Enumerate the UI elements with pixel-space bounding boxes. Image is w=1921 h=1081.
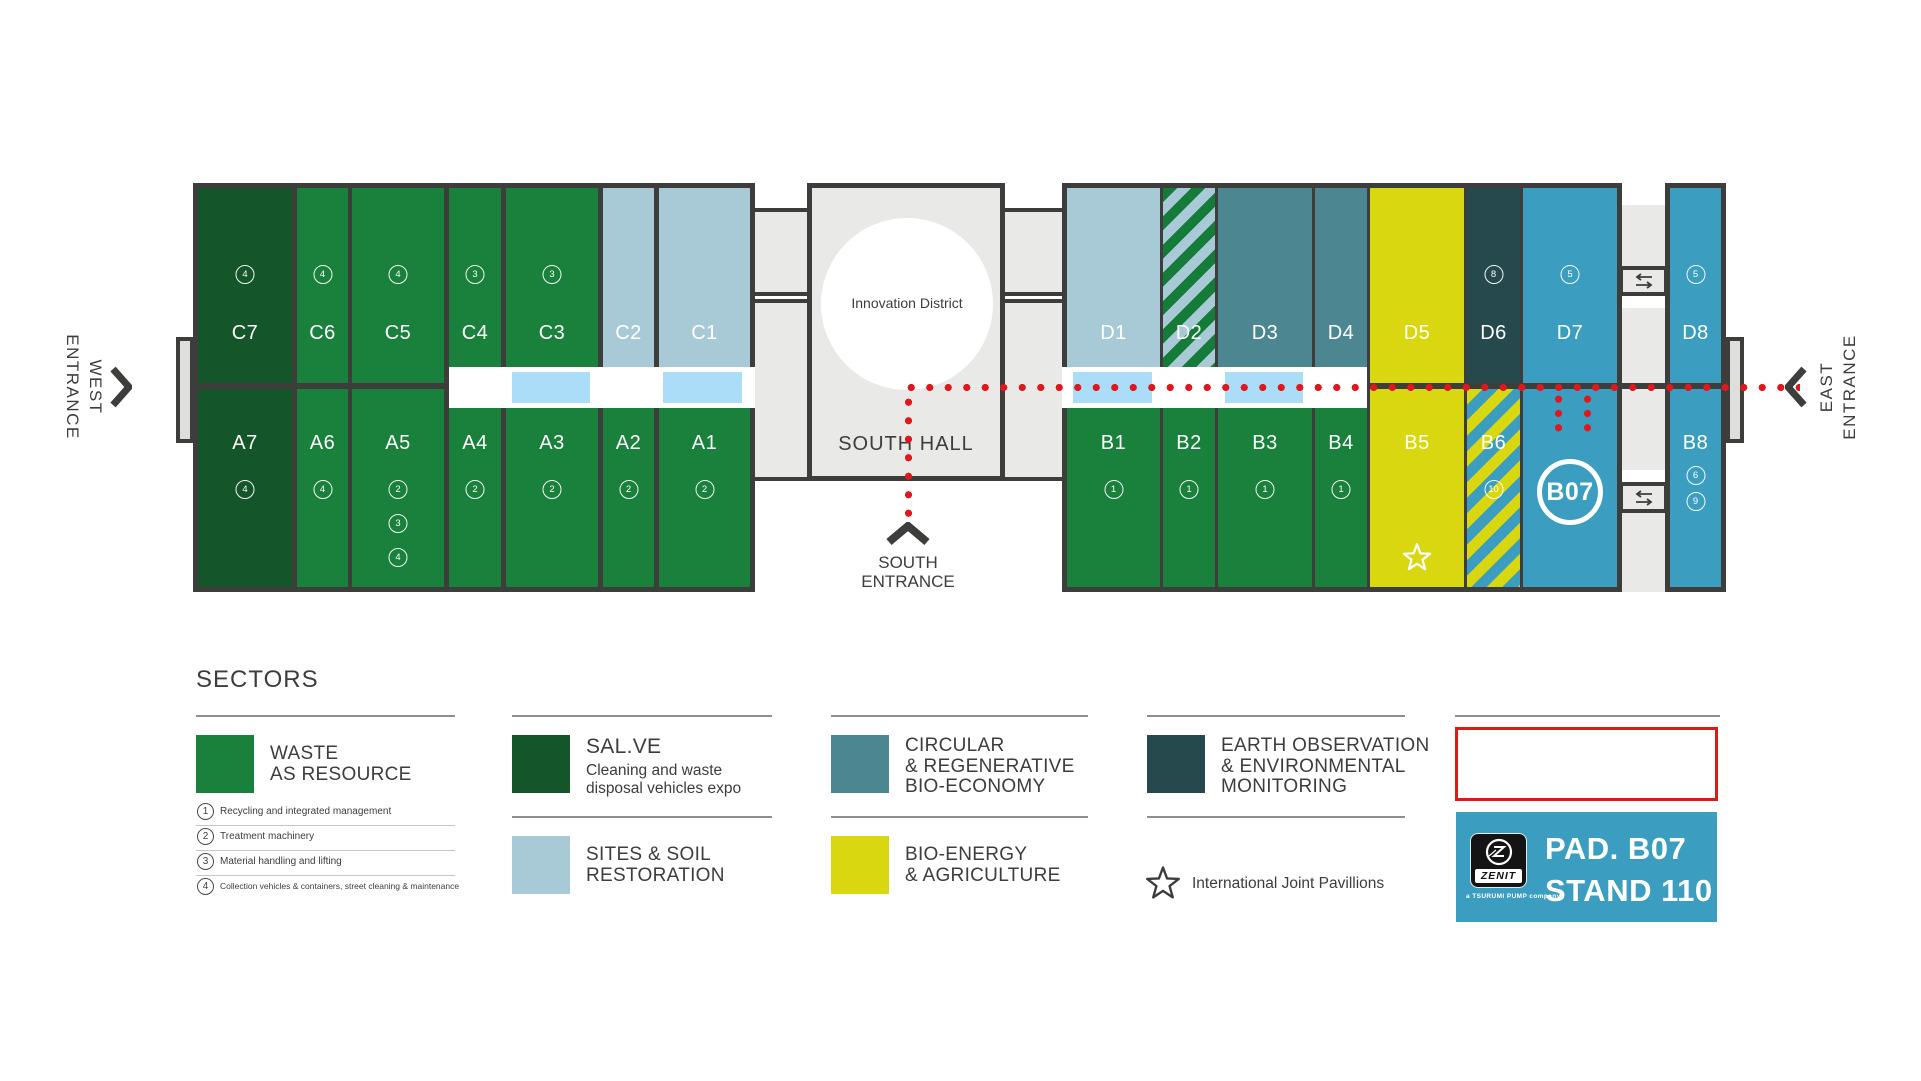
legend-rule	[196, 715, 455, 717]
zenit-wordmark: ZENIT	[1475, 869, 1522, 883]
zenit-emblem-icon	[1484, 837, 1514, 867]
legend-label-line: BIO-ENERGY	[905, 845, 1061, 866]
legend-label-line: & AGRICULTURE	[905, 866, 1061, 887]
legend-rule	[831, 816, 1088, 818]
legend-label-line: CIRCULAR	[905, 736, 1075, 757]
legend-swatch-salve	[512, 735, 570, 793]
legend-rule	[831, 715, 1088, 717]
legend-label-earth: EARTH OBSERVATION& ENVIRONMENTALMONITORI…	[1221, 736, 1430, 798]
legend-swatch-bioenergy	[831, 836, 889, 894]
legend-item-text: Recycling and integrated management	[220, 803, 391, 820]
legend-swatch-earth	[1147, 735, 1205, 793]
legend-label-line: SAL.VE	[586, 737, 661, 758]
legend-label-line: MONITORING	[1221, 777, 1430, 798]
floor-plan-canvas: WEST ENTRANCE Innovation District SOUTH …	[0, 0, 1921, 1081]
joint-pavillions-label: International Joint Pavillions	[1192, 875, 1384, 893]
legend-rule	[1455, 715, 1720, 717]
stand-number: STAND 110	[1545, 870, 1713, 912]
stand-location-text: PAD. B07 STAND 110	[1545, 828, 1713, 912]
legend-label-line: EARTH OBSERVATION	[1221, 736, 1430, 757]
legend-item-number: 4	[197, 878, 214, 895]
legend-item-separator	[196, 850, 455, 851]
legend-label-line: & ENVIRONMENTAL	[1221, 757, 1430, 778]
legend-label-line: BIO-ECONOMY	[905, 777, 1075, 798]
legend-label-sites: SITES & SOILRESTORATION	[586, 845, 725, 886]
legend-item-separator	[196, 825, 455, 826]
legend-desc-line: disposal vehicles expo	[586, 780, 741, 798]
legend-label-line: WASTE	[270, 744, 412, 765]
legend-label-line: AS RESOURCE	[270, 765, 412, 786]
legend-label-salve: SAL.VE	[586, 737, 661, 758]
stand-pavilion: PAD. B07	[1545, 828, 1713, 870]
route-dotted-grid	[1544, 392, 1602, 435]
legend-item-separator	[196, 875, 455, 876]
legend-label-bioenergy: BIO-ENERGY& AGRICULTURE	[905, 845, 1061, 886]
legend-rule	[512, 816, 772, 818]
highlight-box-water-cycle	[1455, 727, 1718, 801]
legend-swatch-waste	[196, 735, 254, 793]
legend-item-number: 2	[197, 828, 214, 845]
legend-desc-line: Cleaning and waste	[586, 762, 741, 780]
legend-swatch-circular	[831, 735, 889, 793]
stand-banner: ZENIT a TSURUMI PUMP company PAD. B07 ST…	[1456, 812, 1717, 922]
legend-item-number: 1	[197, 803, 214, 820]
route-dotted-line-horizontal	[902, 383, 1800, 392]
legend-rule	[1147, 715, 1405, 717]
legend-item-text: Treatment machinery	[220, 828, 314, 845]
legend-swatch-sites	[512, 836, 570, 894]
legend-label-circular: CIRCULAR& REGENERATIVEBIO-ECONOMY	[905, 736, 1075, 798]
legend-item-text: Collection vehicles & containers, street…	[220, 878, 459, 895]
legend-item-text: Material handling and lifting	[220, 853, 342, 870]
legend-label-waste: WASTEAS RESOURCE	[270, 744, 412, 785]
zenit-logo: ZENIT	[1470, 833, 1527, 888]
joint-pavillion-star-icon	[1145, 866, 1181, 902]
legend-desc-salve: Cleaning and wastedisposal vehicles expo	[586, 762, 741, 797]
legend-rule	[512, 715, 772, 717]
legend-label-line: RESTORATION	[586, 866, 725, 887]
legend-item-number: 3	[197, 853, 214, 870]
route-dotted-line-vertical	[904, 393, 913, 517]
legend-rule	[1147, 816, 1405, 818]
legend-label-line: & REGENERATIVE	[905, 757, 1075, 778]
legend-label-line: SITES & SOIL	[586, 845, 725, 866]
